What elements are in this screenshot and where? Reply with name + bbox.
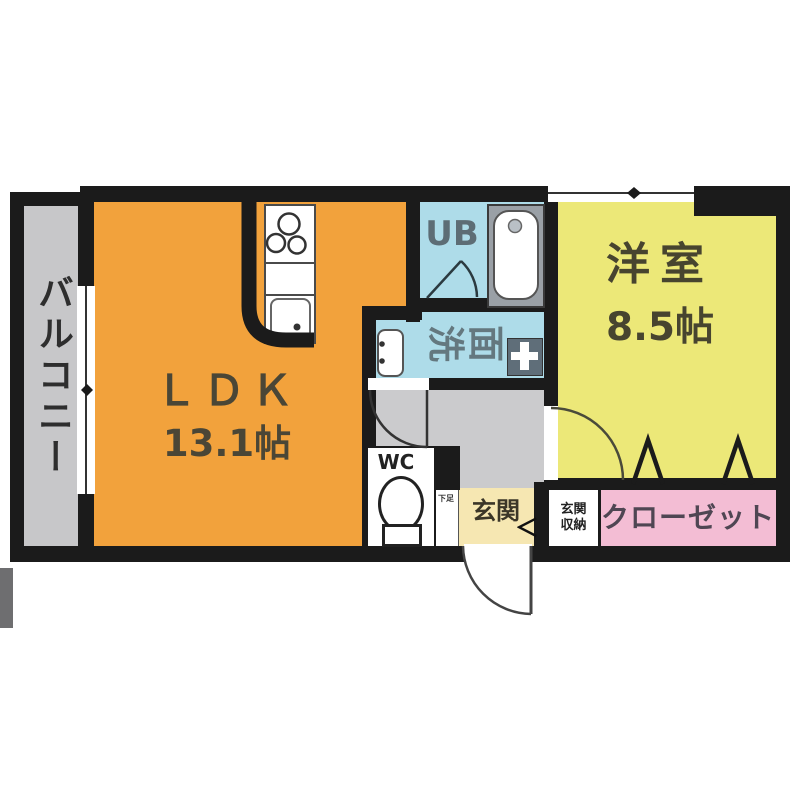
washroom-label-char1: 洗 bbox=[427, 325, 464, 362]
western-door-gap bbox=[544, 406, 558, 480]
kitchen-counter bbox=[264, 262, 316, 296]
western-room-size-label: 8.5帖 bbox=[560, 304, 760, 350]
bathtub bbox=[493, 210, 539, 300]
closet-label: クローゼット bbox=[600, 500, 776, 536]
entrance-storage-box: 玄関 収納 bbox=[547, 488, 600, 548]
washroom-label: 洗 面 bbox=[424, 316, 506, 370]
shoe-note-label: 下足 bbox=[434, 492, 458, 506]
entrance-direction-arrow: ＜ bbox=[514, 514, 540, 542]
top-window-line bbox=[548, 192, 694, 194]
washroom-door-gap bbox=[368, 378, 429, 390]
washbasin bbox=[377, 329, 404, 377]
wc-label: WC bbox=[368, 450, 424, 474]
balcony-window-line bbox=[85, 286, 87, 494]
ldk-label: ＬＤＫ bbox=[118, 368, 336, 414]
washer-pan-cross-v bbox=[520, 342, 529, 370]
wc-entrance-stub-wall bbox=[432, 446, 460, 490]
toilet-tank bbox=[382, 524, 422, 547]
floor-plan: バルコニー ＬＤＫ 13.1帖 洋室 8.5帖 UB 洗 面 WC 玄関 ＜ 玄… bbox=[0, 0, 800, 800]
washroom-label-char2: 面 bbox=[467, 325, 504, 362]
entrance-storage-label-line1: 玄関 bbox=[560, 502, 586, 518]
kitchen-sink bbox=[270, 298, 311, 340]
unit-bath-label: UB bbox=[422, 212, 482, 256]
left-wall bbox=[10, 192, 24, 560]
right-wall bbox=[776, 186, 790, 561]
top-right-wall-block bbox=[694, 186, 776, 216]
entrance-storage-label-line2: 収納 bbox=[560, 518, 586, 534]
entrance-door-gap bbox=[464, 544, 532, 564]
exterior-pillar-stub bbox=[0, 568, 13, 628]
bottom-wall bbox=[10, 546, 790, 562]
balcony-label: バルコニー bbox=[24, 212, 80, 540]
kitchen-stove bbox=[264, 204, 316, 264]
western-room-label: 洋室 bbox=[560, 240, 760, 290]
ldk-size-label: 13.1帖 bbox=[118, 422, 336, 464]
